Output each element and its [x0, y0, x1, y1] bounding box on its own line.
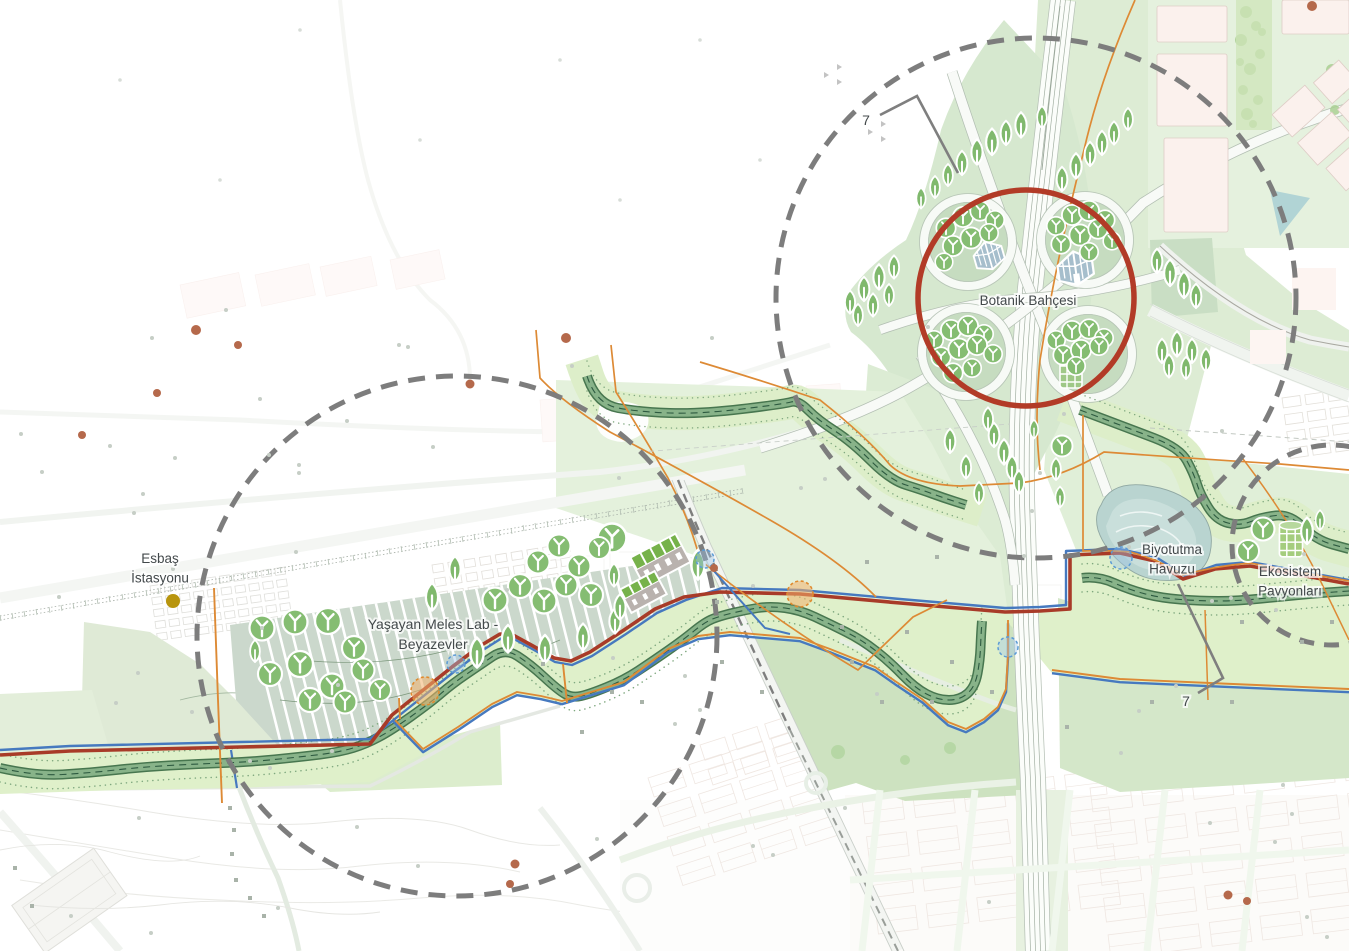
svg-text:Yaşayan Meles Lab -: Yaşayan Meles Lab -: [368, 616, 499, 632]
svg-text:Botanik Bahçesi: Botanik Bahçesi: [980, 293, 1077, 308]
svg-text:Beyazevler: Beyazevler: [398, 636, 468, 652]
svg-text:Ekosistem: Ekosistem: [1259, 564, 1321, 579]
svg-text:7: 7: [1182, 693, 1190, 709]
svg-text:Biyotutma: Biyotutma: [1142, 542, 1203, 557]
svg-text:7: 7: [862, 112, 870, 128]
svg-text:İstasyonu: İstasyonu: [131, 571, 189, 586]
svg-text:Esbaş: Esbaş: [141, 551, 179, 566]
svg-text:Pavyonları: Pavyonları: [1258, 584, 1322, 599]
svg-text:Havuzu: Havuzu: [1149, 562, 1195, 577]
